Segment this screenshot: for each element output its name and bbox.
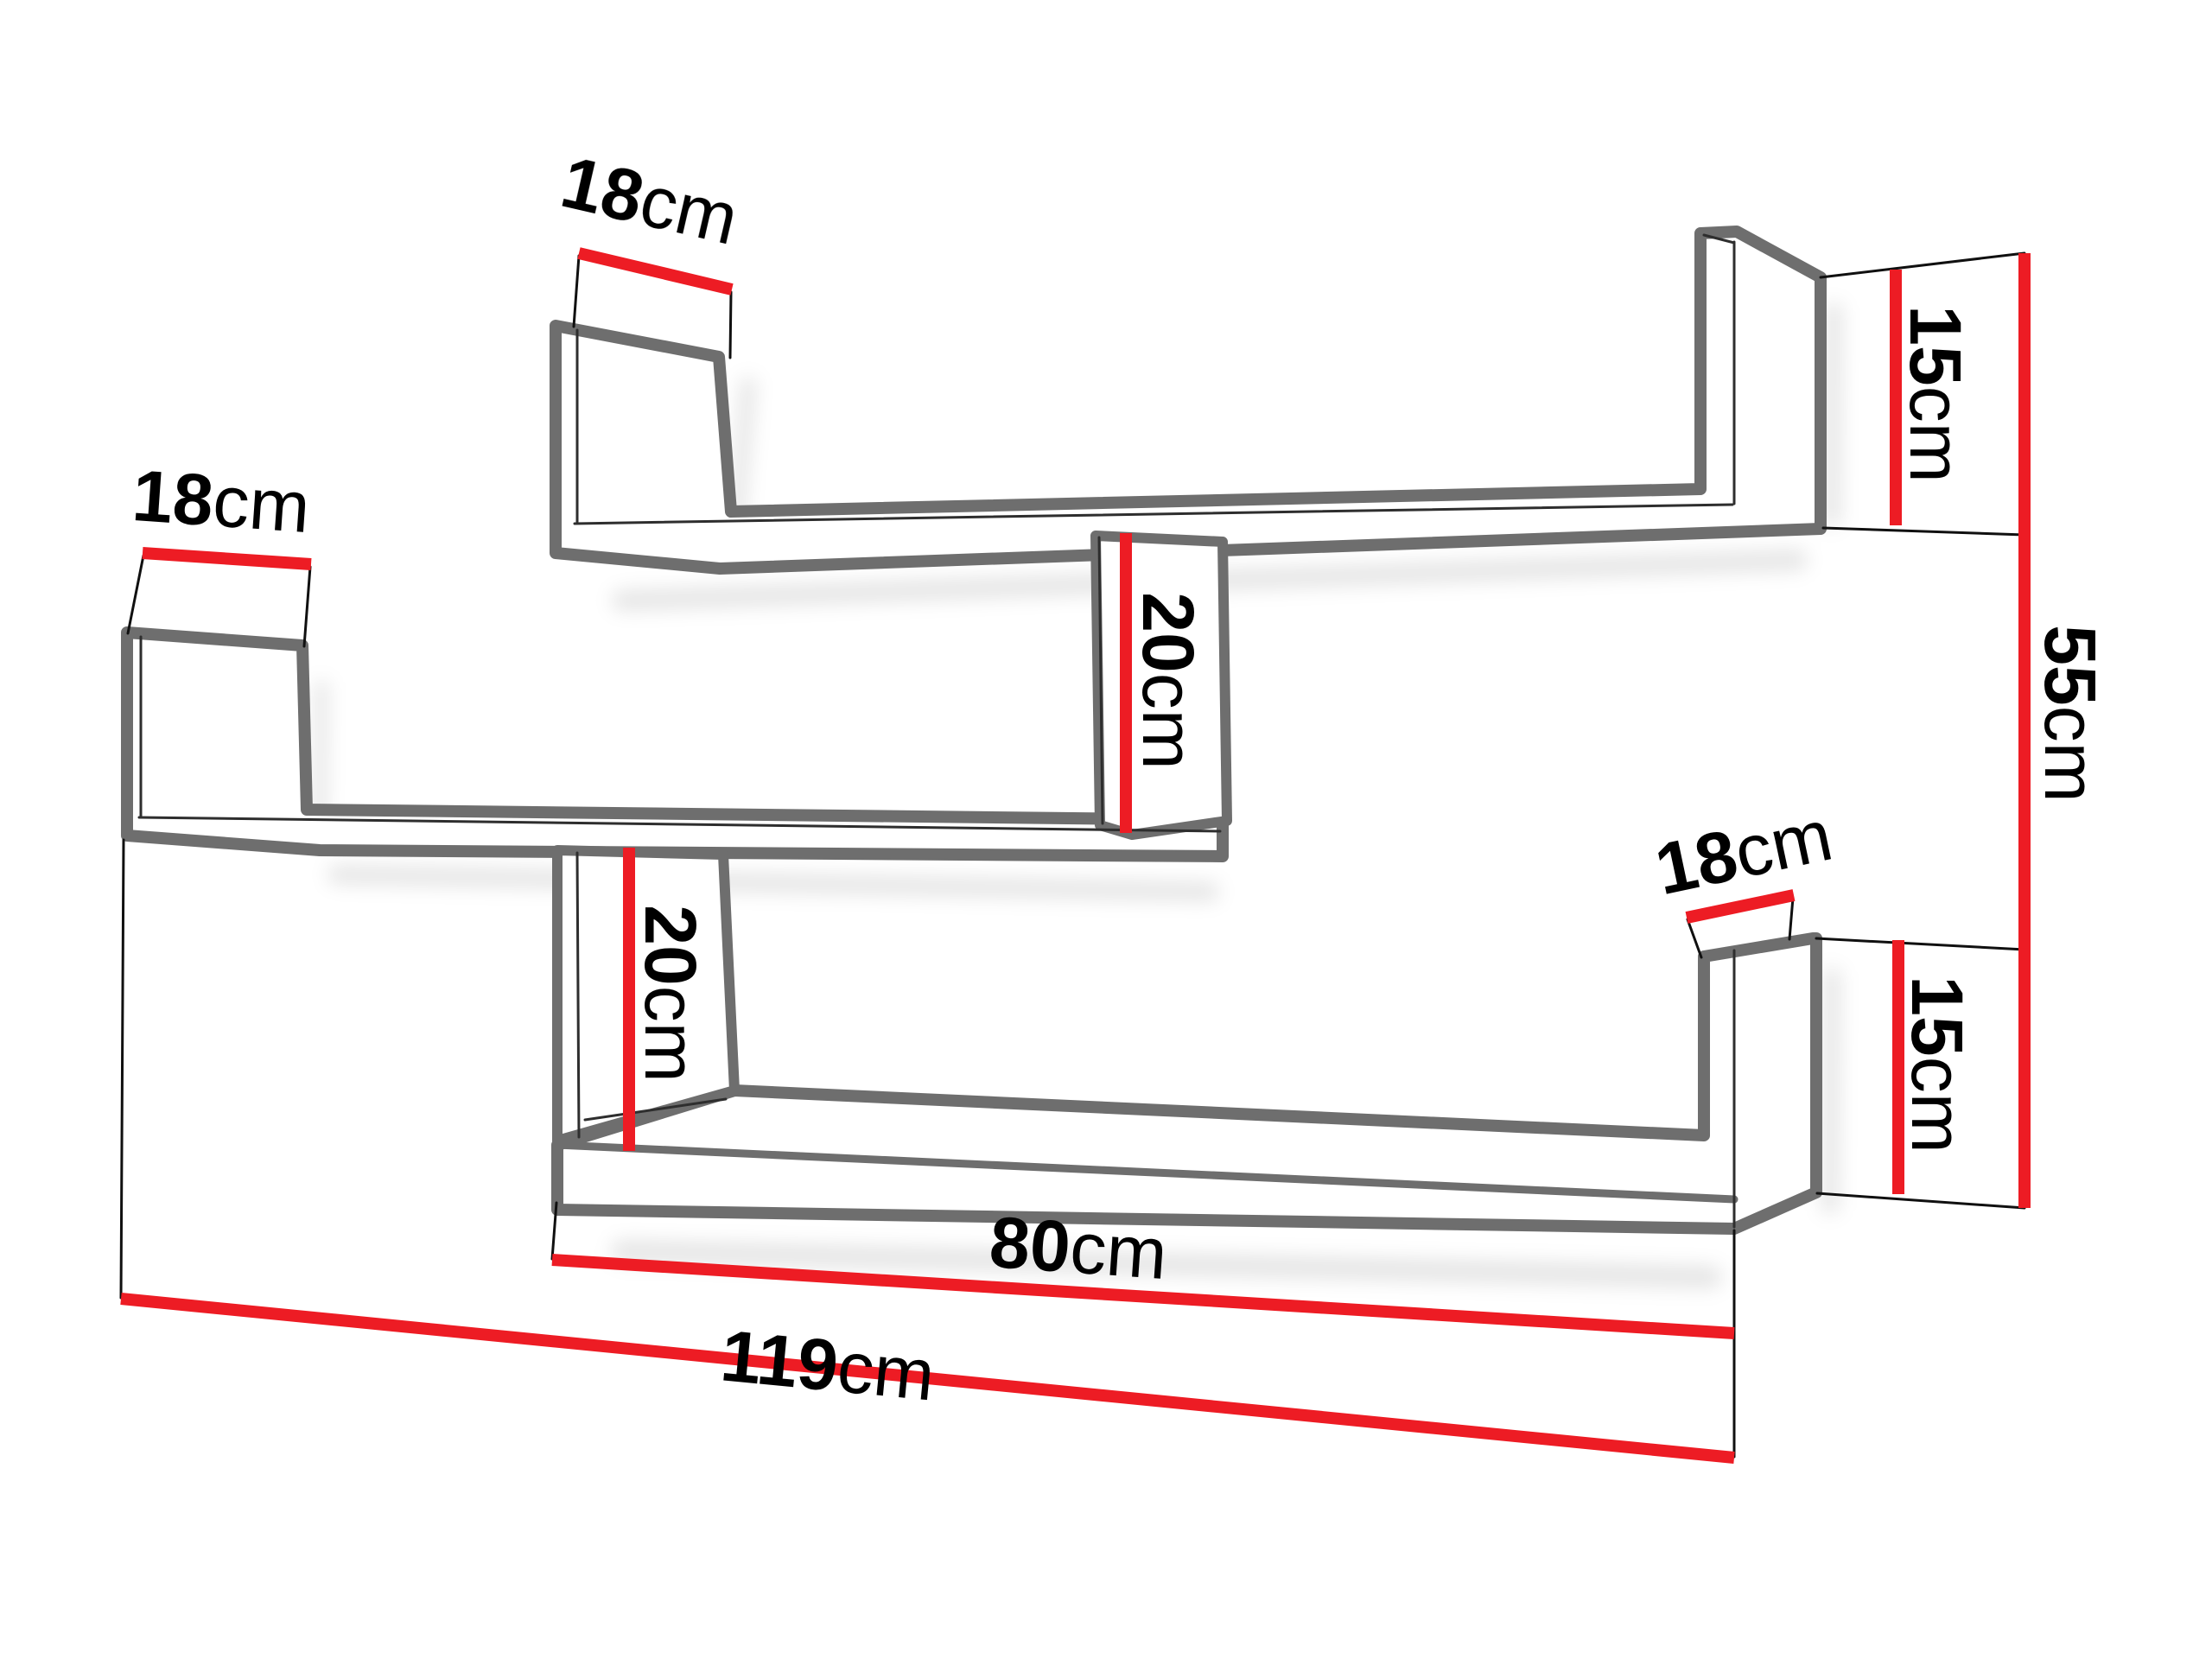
shelf-dimension-diagram: 18cm 18cm 18cm 15cm 15cm 20cm 20cm 55cm … [0,0,2212,1659]
dim-unit: cm [1727,794,1839,893]
dim-unit: cm [630,986,711,1083]
dim-label-lower-divider-gap: 20cm [630,905,711,1082]
dim-label-depth-middle-left: 18cm [130,454,312,548]
dim-label-upper-divider-gap: 20cm [1128,592,1209,769]
board-edge-lines [139,235,1734,1227]
dim-label-height-bottom-right-panel: 15cm [1897,976,1978,1153]
dim-label-depth-bottom-right: 18cm [1649,794,1839,911]
dim-unit: cm [210,460,312,548]
dim-unit: cm [1128,673,1209,770]
dim-label-bottom-shelf-length: 80cm [987,1201,1169,1294]
dim-unit: cm [1895,386,1976,483]
dim-value: 20 [1128,592,1209,672]
dim-value: 119 [717,1314,842,1407]
middle-shelf-outline [127,632,1223,856]
dim-label-total-width: 119cm [717,1314,938,1415]
dim-value: 20 [630,905,711,985]
diagram-canvas: 18cm 18cm 18cm 15cm 15cm 20cm 20cm 55cm … [0,0,2212,1659]
bottom-shelf-outline [557,938,1816,1229]
dim-unit: cm [1897,1057,1978,1154]
dim-unit: cm [1067,1206,1169,1294]
dim-label-height-top-right-panel: 15cm [1895,305,1976,482]
dim-value: 18 [130,454,216,541]
dim-unit: cm [2030,706,2111,803]
dim-unit: cm [834,1325,938,1415]
dim-unit: cm [632,159,745,260]
dim-value: 55 [2030,625,2111,705]
dim-line-depth-top-left [579,253,732,289]
dim-label-total-height: 55cm [2030,625,2111,802]
dim-line-depth-middle-left [143,553,311,564]
dim-value: 80 [987,1201,1073,1287]
dim-label-depth-top-left: 18cm [554,141,745,260]
dim-value: 15 [1895,305,1976,385]
dim-value: 15 [1897,976,1978,1056]
